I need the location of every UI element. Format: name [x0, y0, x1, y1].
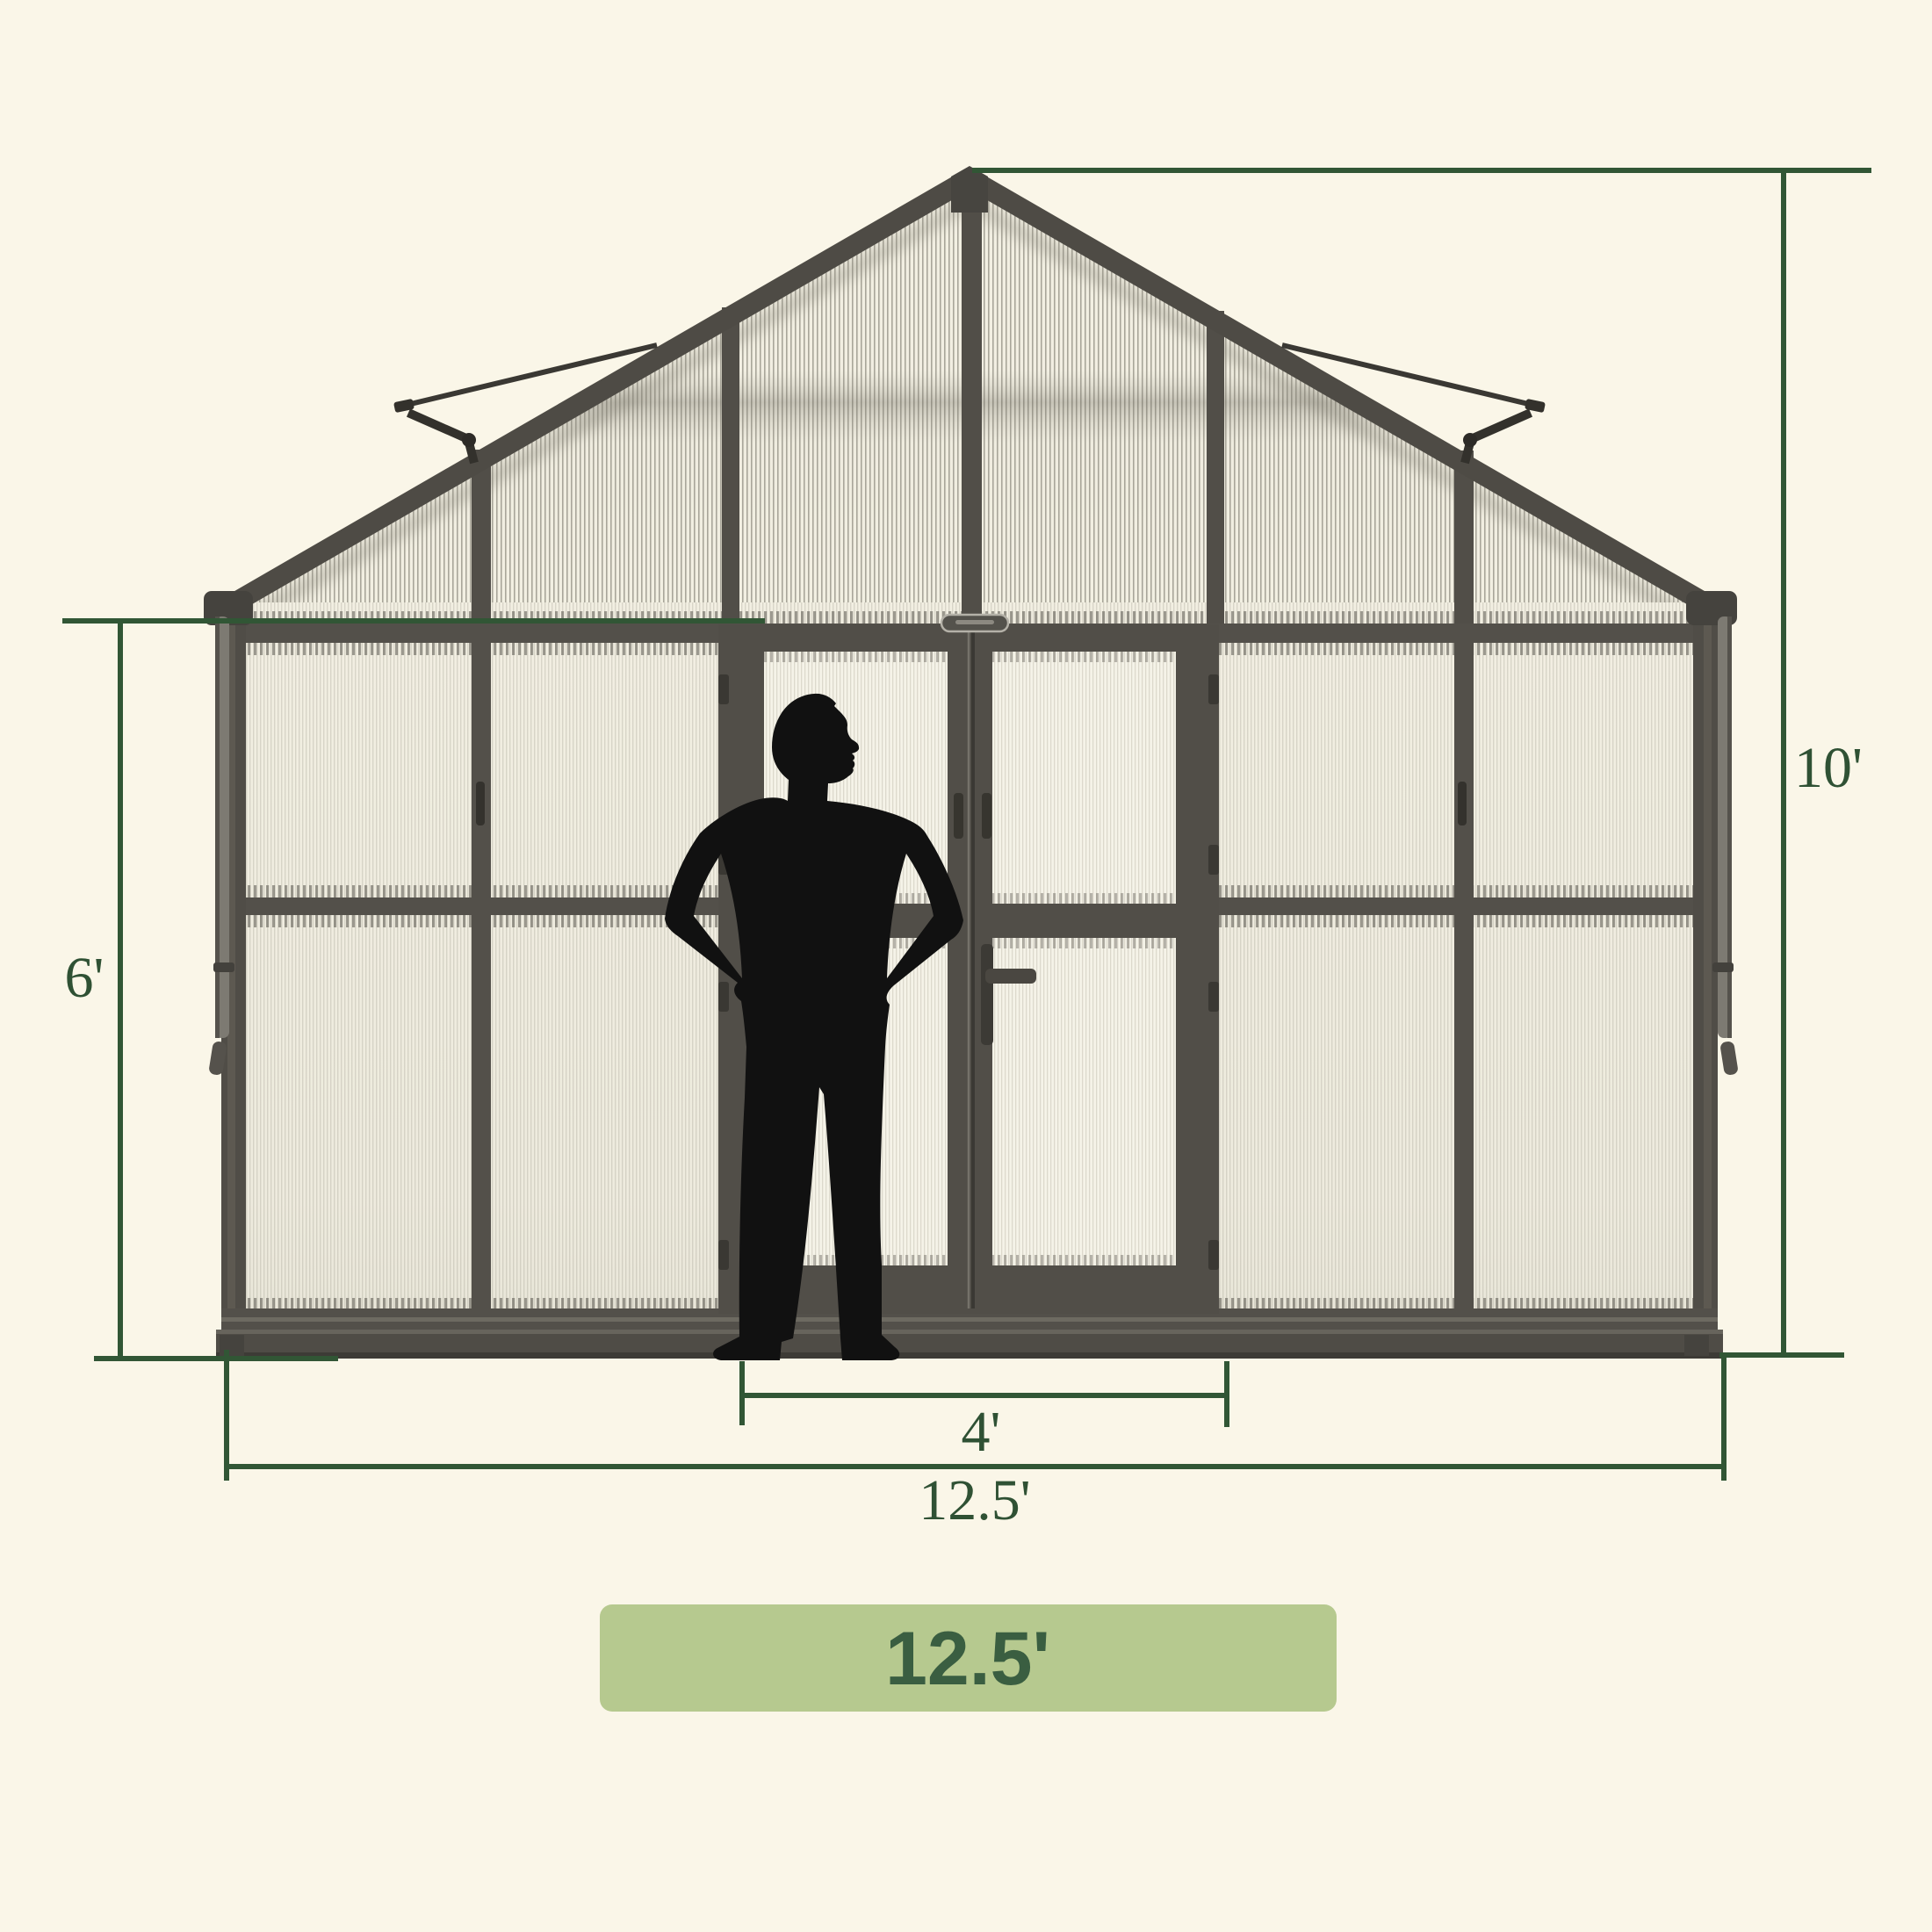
svg-text:12.5': 12.5' — [919, 1468, 1030, 1532]
svg-text:6': 6' — [65, 946, 105, 1010]
svg-text:10': 10' — [1794, 736, 1863, 800]
svg-text:12.5': 12.5' — [885, 1617, 1050, 1701]
svg-text:4': 4' — [962, 1400, 1001, 1464]
